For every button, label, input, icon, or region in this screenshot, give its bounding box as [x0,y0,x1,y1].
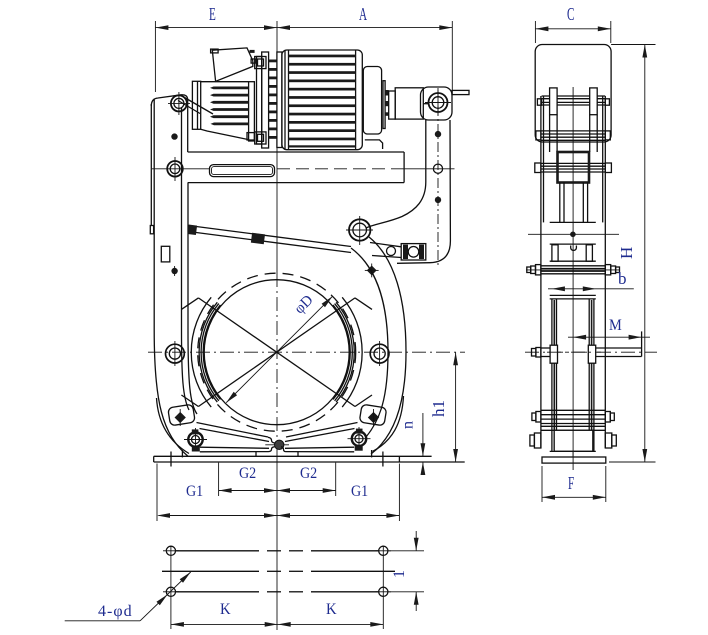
svg-text:G1: G1 [351,483,368,500]
svg-text:H: H [617,247,636,259]
svg-text:C: C [567,6,574,25]
svg-text:b: b [618,269,627,288]
svg-text:1: 1 [391,570,408,578]
svg-text:E: E [209,6,216,25]
svg-text:n: n [400,421,417,429]
svg-text:4-φd: 4-φd [98,603,133,620]
svg-text:G2: G2 [300,465,317,482]
svg-text:K: K [220,600,231,618]
svg-text:M: M [609,316,622,334]
svg-text:A: A [359,6,367,25]
svg-text:F: F [568,475,574,494]
svg-text:G2: G2 [239,465,256,482]
svg-text:h1: h1 [429,400,448,417]
svg-text:K: K [326,600,337,618]
svg-text:G1: G1 [186,483,203,500]
